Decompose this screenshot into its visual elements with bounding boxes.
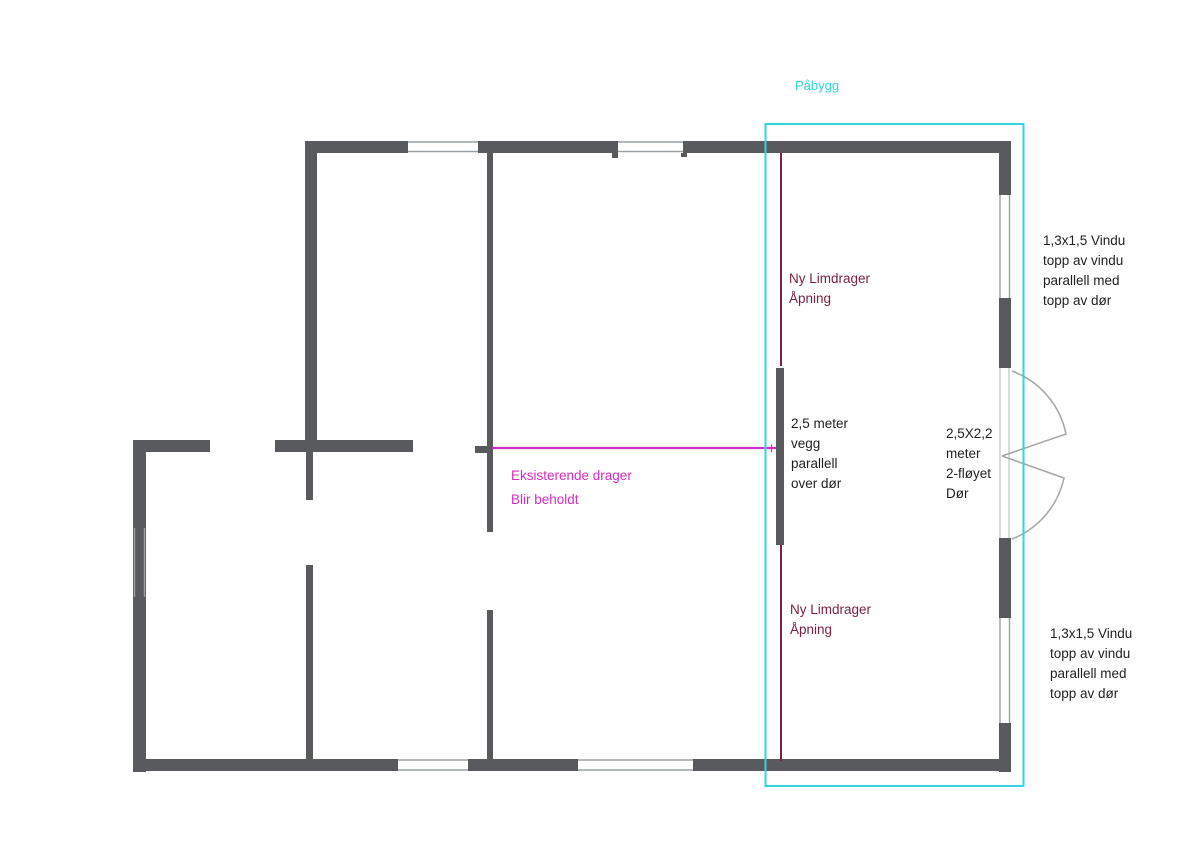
wall-right-2: [999, 298, 1011, 368]
beam-lines: [492, 153, 781, 761]
wall-interior-center-tick: [475, 446, 488, 453]
windows: [135, 142, 1010, 770]
new-wall-note: 2,5 meter vegg parallell over dør: [791, 414, 848, 494]
wall-right-1: [999, 141, 1011, 195]
existing-beam-note-line2: Blir beholdt: [511, 490, 579, 510]
double-door: [1000, 368, 1066, 539]
wall-interior-center-upper: [487, 153, 493, 532]
wall-interior-left-upper: [306, 452, 313, 500]
wall-interior-left-lower: [306, 565, 313, 759]
floor-plan-drawing: [0, 0, 1200, 848]
wall-top-3: [683, 141, 1010, 153]
window-jamb-stub: [612, 153, 618, 158]
new-beam-note-top: Ny Limdrager Åpning: [789, 269, 870, 309]
existing-beam-note-line1: Eksisterende drager: [511, 466, 632, 486]
wall-right-3: [999, 538, 1011, 618]
wall-left-main: [305, 141, 317, 452]
wall-top-1: [305, 141, 408, 153]
extension-label: Påbygg: [795, 78, 839, 94]
wall-interior-center-lower: [487, 610, 493, 759]
window-jamb-stub: [681, 153, 687, 157]
window-note-bottom: 1,3x1,5 Vindu topp av vindu parallell me…: [1050, 624, 1132, 704]
wall-bottom-2: [468, 759, 578, 771]
new-beam-note-bottom: Ny Limdrager Åpning: [790, 600, 871, 640]
wall-bottom-3: [693, 759, 1011, 771]
door-leaf-swing-bottom: [1002, 456, 1064, 539]
window-note-top: 1,3x1,5 Vindu topp av vindu parallell me…: [1043, 231, 1125, 311]
door-leaf-swing-top: [1002, 371, 1066, 456]
wall-extension-left: [133, 440, 146, 772]
wall-new-over-door: [776, 368, 784, 545]
wall-interior-horizontal: [275, 440, 413, 452]
door-size-note: 2,5X2,2 meter 2-fløyet Dør: [946, 424, 993, 504]
wall-bottom-1: [133, 759, 398, 771]
wall-top-2: [478, 141, 618, 153]
floor-plan-page: Påbygg Ny Limdrager Åpning 2,5 meter veg…: [0, 0, 1200, 848]
interior-walls: [275, 153, 784, 759]
exterior-walls: [133, 141, 1011, 772]
